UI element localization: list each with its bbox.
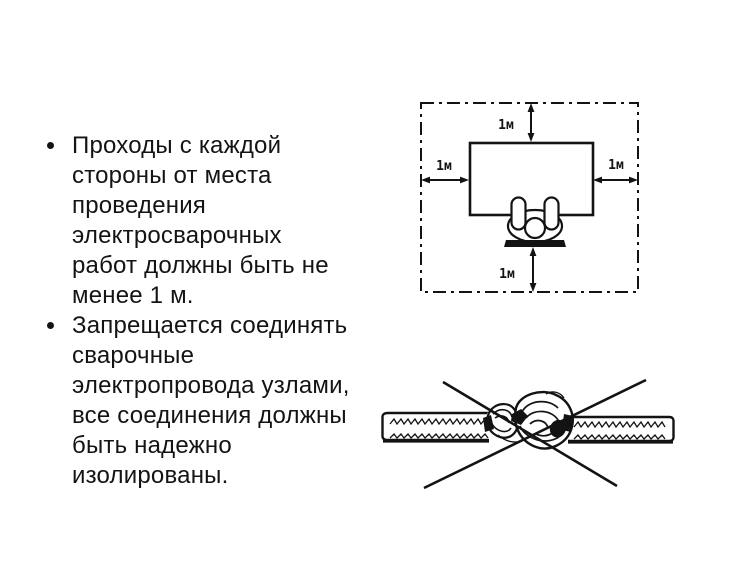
dimension-arrow-left — [421, 177, 469, 184]
bullet-list: Проходы с каждой стороны от места провед… — [47, 131, 387, 491]
bullet-text-line: работ должны быть не — [72, 251, 387, 281]
bullet-text-line: изолированы. — [72, 461, 387, 491]
bullet-text-line: Запрещается соединять — [72, 311, 387, 341]
workbench-rect — [470, 143, 593, 215]
bullet-text-line: менее 1 м. — [72, 281, 387, 311]
clearance-diagram: 1м 1м 1м 1м — [408, 88, 652, 304]
welder-right-arm — [545, 198, 559, 230]
dim-label-right: 1м — [608, 158, 624, 173]
bullet-text-line: сварочные — [72, 341, 387, 371]
cable-right — [568, 417, 674, 442]
bullet-text-line: электросварочных — [72, 221, 387, 251]
list-item: Проходы с каждой стороны от места провед… — [47, 131, 387, 311]
dim-label-bottom: 1м — [499, 267, 515, 282]
slide: Проходы с каждой стороны от места провед… — [0, 0, 750, 561]
bullet-text-line: быть надежно — [72, 431, 387, 461]
dimension-arrow-bottom — [530, 247, 537, 292]
bullet-text-line: электропровода узлами, — [72, 371, 387, 401]
welder-left-arm — [512, 198, 526, 230]
bullet-text-line: Проходы с каждой — [72, 131, 387, 161]
cable-left — [382, 413, 489, 441]
list-item: Запрещается соединять сварочные электроп… — [47, 311, 387, 491]
bullet-icon — [47, 322, 54, 329]
bullet-icon — [47, 142, 54, 149]
bullet-text-line: проведения — [72, 191, 387, 221]
welder-bench — [504, 240, 566, 247]
bullet-text-line: все соединения должны — [72, 401, 387, 431]
dimension-arrow-top — [528, 103, 535, 142]
knot-prohibition-diagram — [368, 368, 686, 500]
dim-label-left: 1м — [436, 159, 452, 174]
dim-label-top: 1м — [498, 118, 514, 133]
dimension-arrow-right — [593, 177, 638, 184]
welder-head — [525, 218, 545, 238]
bullet-text-line: стороны от места — [72, 161, 387, 191]
